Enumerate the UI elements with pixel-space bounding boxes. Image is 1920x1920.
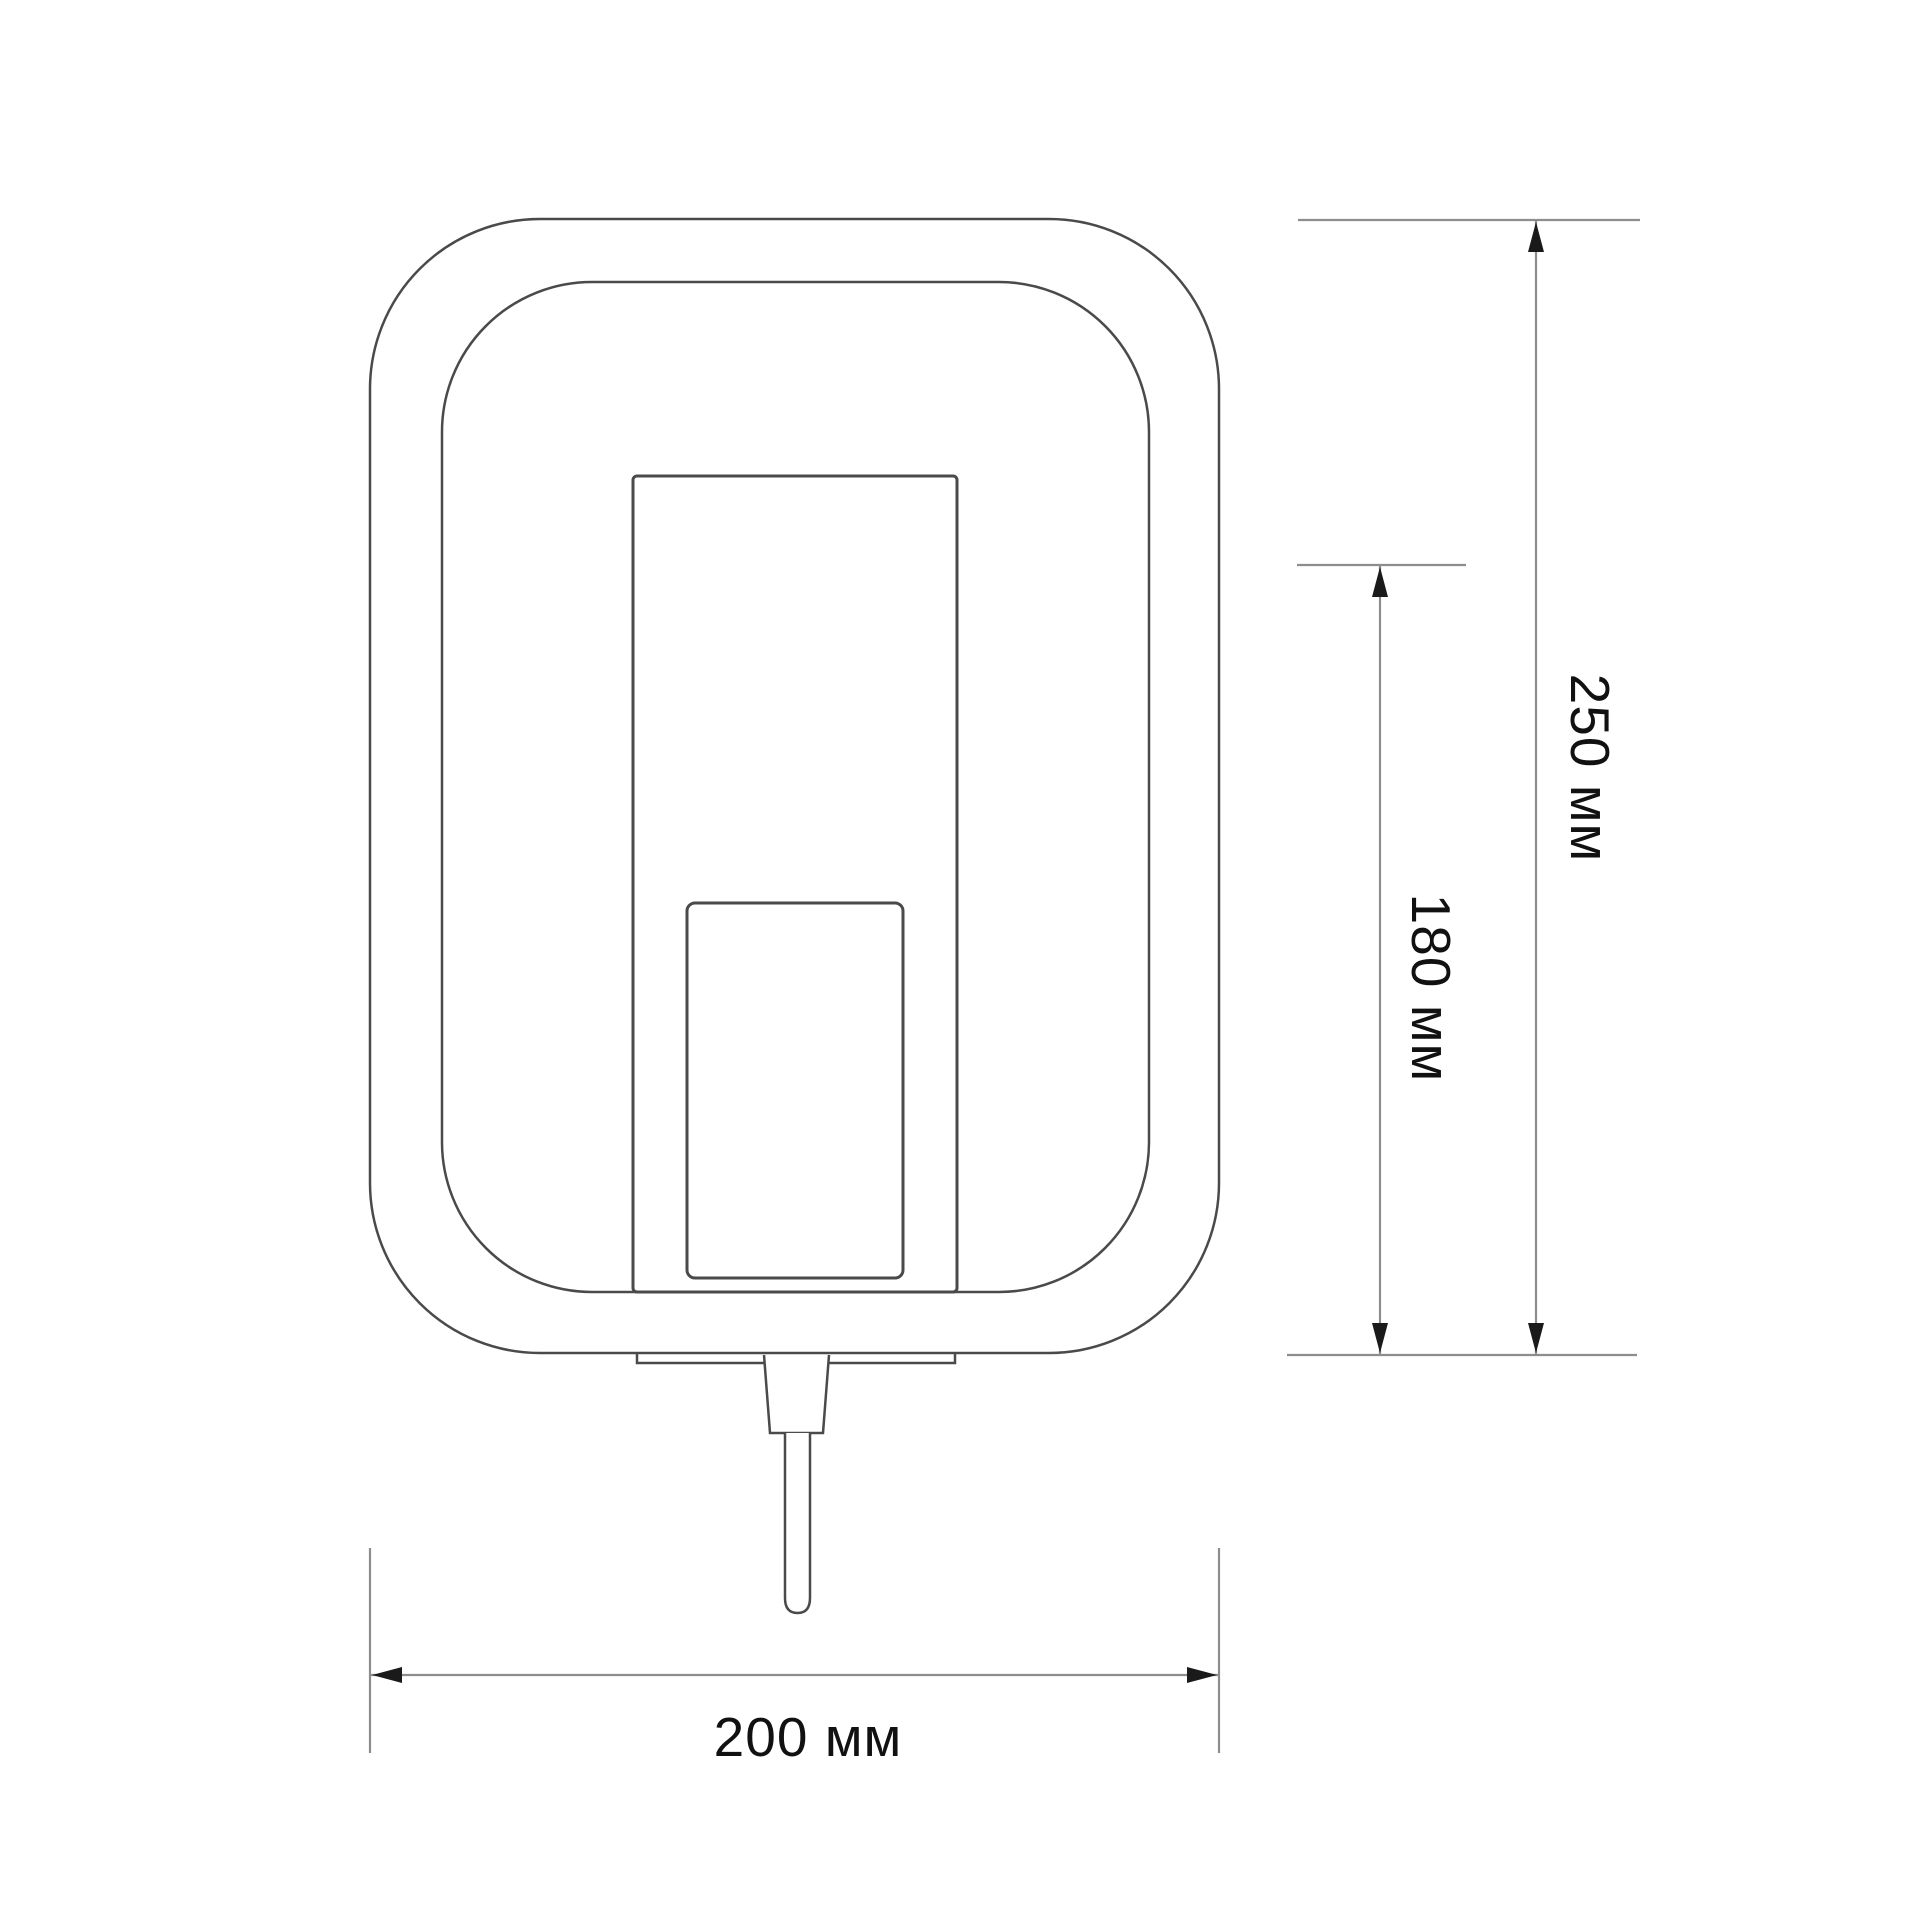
display-window-frame bbox=[633, 476, 957, 1292]
arrow-up-icon bbox=[1528, 222, 1544, 252]
arrow-up-icon bbox=[1372, 567, 1388, 597]
dimension-label-inner-height: 180 мм bbox=[1400, 894, 1462, 1083]
arrow-right-icon bbox=[1187, 1667, 1217, 1683]
dimension-label-width: 200 мм bbox=[714, 1706, 903, 1768]
arrow-down-icon bbox=[1372, 1323, 1388, 1353]
device-body-group bbox=[370, 219, 1219, 1613]
dimension-inner-height: 180 мм bbox=[1297, 565, 1466, 1355]
arrow-down-icon bbox=[1528, 1323, 1544, 1353]
device-outer-housing bbox=[370, 219, 1219, 1353]
arrow-left-icon bbox=[372, 1667, 402, 1683]
device-inner-face bbox=[442, 282, 1149, 1292]
plug-pin-fill bbox=[785, 1433, 810, 1613]
mounting-plate-right bbox=[829, 1353, 955, 1363]
inner-module bbox=[687, 903, 903, 1278]
technical-drawing: 250 мм 180 мм 200 мм bbox=[0, 0, 1920, 1920]
mounting-plate-left bbox=[637, 1353, 765, 1363]
dimension-label-height: 250 мм bbox=[1559, 674, 1621, 863]
dimension-height: 250 мм bbox=[1287, 220, 1640, 1355]
drawing-canvas: 250 мм 180 мм 200 мм bbox=[0, 0, 1920, 1920]
plug-connector-fill bbox=[764, 1355, 829, 1433]
